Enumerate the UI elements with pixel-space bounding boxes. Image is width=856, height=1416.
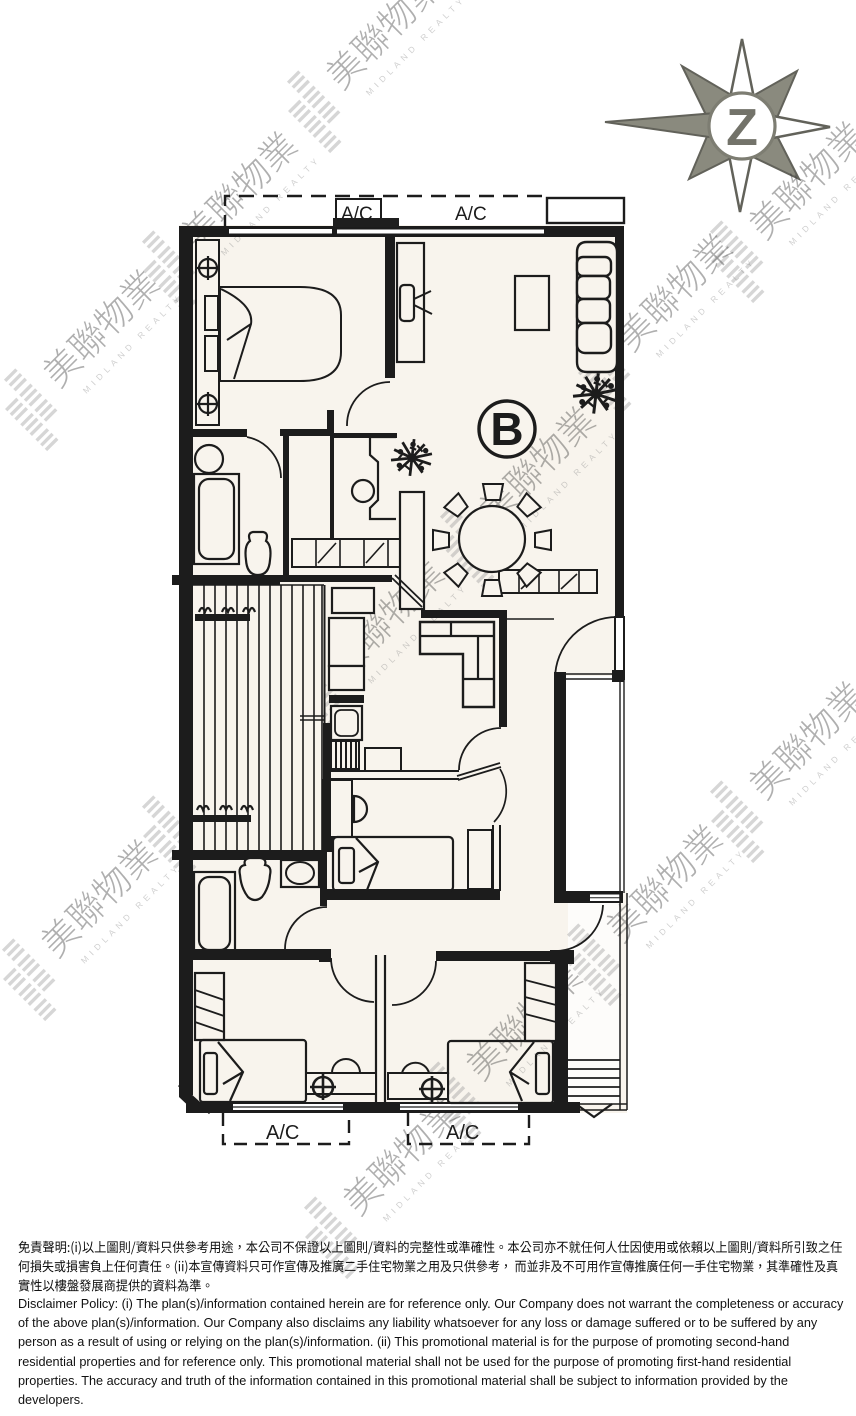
- svg-text:Z: Z: [726, 99, 758, 157]
- svg-text:B: B: [490, 403, 523, 455]
- svg-text:A/C: A/C: [266, 1122, 299, 1144]
- svg-text:A/C: A/C: [446, 1122, 479, 1144]
- svg-text:A/C: A/C: [455, 204, 487, 225]
